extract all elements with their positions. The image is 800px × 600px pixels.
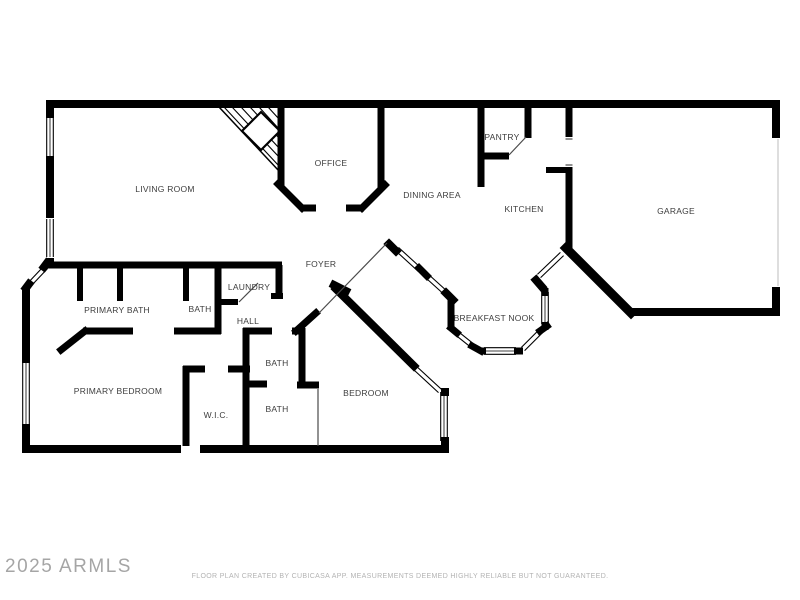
room-label-laundry: LAUNDRY [228, 282, 270, 292]
room-label-foyer: FOYER [306, 259, 337, 269]
room-label-breakfast-nook: BREAKFAST NOOK [454, 313, 535, 323]
exterior-walls [22, 100, 780, 453]
room-label-bath-hall: BATH [265, 358, 288, 368]
room-label-bedroom: BEDROOM [343, 388, 389, 398]
disclaimer-text: FLOOR PLAN CREATED BY CUBICASA APP. MEAS… [0, 573, 800, 580]
room-label-garage: GARAGE [657, 206, 695, 216]
room-label-dining-area: DINING AREA [403, 190, 461, 200]
room-label-hall: HALL [237, 316, 259, 326]
room-label-bath-middle: BATH [188, 304, 211, 314]
room-label-kitchen: KITCHEN [504, 204, 543, 214]
room-label-wic: W.I.C. [204, 410, 229, 420]
room-label-primary-bedroom: PRIMARY BEDROOM [74, 386, 162, 396]
garage-diagonal-wall [566, 248, 631, 313]
room-label-living-room: LIVING ROOM [135, 184, 194, 194]
floor-plan-drawing [0, 0, 800, 600]
floor-plan-page: LIVING ROOMOFFICEPANTRYDINING AREAKITCHE… [0, 0, 800, 600]
room-label-pantry: PANTRY [484, 132, 519, 142]
room-label-primary-bath: PRIMARY BATH [84, 305, 150, 315]
interior-walls [46, 104, 569, 449]
room-label-office: OFFICE [315, 158, 348, 168]
room-label-bath-lower: BATH [265, 404, 288, 414]
staircase-icon [219, 107, 280, 171]
door-opening-lines [239, 137, 573, 446]
